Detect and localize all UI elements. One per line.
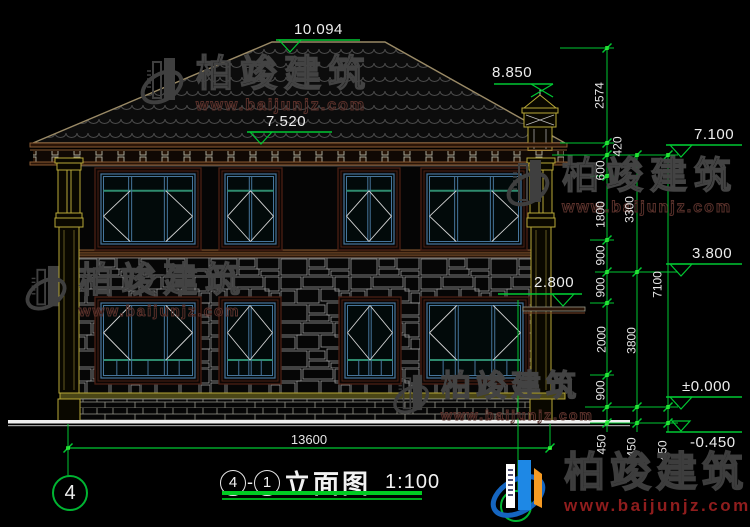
second-floor-window (219, 168, 282, 250)
sill-band (60, 393, 565, 399)
second-floor-window (95, 168, 201, 250)
dim-900b: 900 (595, 259, 608, 317)
plinth (62, 399, 545, 421)
elevation-chimney: 8.850 (492, 64, 532, 81)
floor-band (62, 250, 545, 258)
second-floor-window (421, 168, 527, 250)
elevation-second-floor: 3.800 (692, 245, 732, 262)
dim-420: 420 (612, 118, 625, 176)
elevation-ridge: 10.094 (294, 21, 343, 38)
dim-7100: 7100 (652, 256, 665, 314)
drawing-title: 4 - 1 立面图 1:100 (220, 464, 440, 501)
first-floor-window (421, 297, 529, 384)
logo-brand: 柏竣建筑 (564, 452, 750, 493)
first-floor-window (95, 297, 201, 384)
eave-cornice (30, 143, 567, 165)
second-floor-window (338, 168, 400, 250)
dim-2000: 2000 (596, 311, 609, 369)
title-dash: - (247, 472, 253, 493)
title-underline-thin (222, 498, 422, 500)
elevation-zero: ±0.000 (682, 378, 731, 395)
title-underline (222, 491, 422, 495)
elevation-second-roof: 7.100 (694, 126, 734, 143)
dim-3800: 3800 (626, 312, 639, 370)
ground-line (8, 420, 630, 426)
company-logo-icon (486, 452, 558, 524)
title-name: 立面图 (284, 464, 371, 501)
first-floor-window (339, 297, 401, 384)
dim-overall-width: 13600 (279, 432, 339, 447)
first-floor-window (219, 297, 281, 384)
dim-3300: 3300 (624, 181, 637, 239)
dim-900c: 900 (595, 362, 608, 420)
dim-2574: 2574 (594, 67, 607, 125)
elevation-canopy: 2.800 (534, 274, 574, 291)
elevation-eave: 7.520 (266, 113, 306, 130)
grid-bubble-4: 4 (52, 475, 88, 511)
logo-url: www.baijunjz.com (564, 496, 750, 516)
company-logo: 柏竣建筑 www.baijunjz.com (486, 452, 750, 524)
